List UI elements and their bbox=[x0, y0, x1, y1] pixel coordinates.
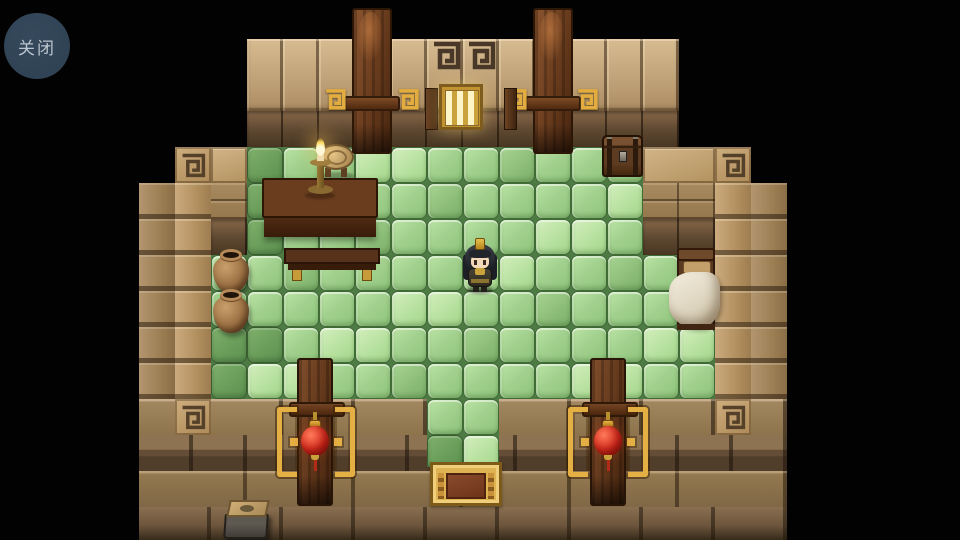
floor-tile bbox=[572, 220, 606, 254]
floor-tile bbox=[464, 364, 498, 398]
right-wall-outer bbox=[751, 183, 787, 399]
floor-tile bbox=[608, 184, 642, 218]
close-button[interactable]: 关闭 bbox=[4, 13, 70, 79]
corner-spiral-tile bbox=[175, 147, 211, 183]
floor-tile bbox=[536, 220, 570, 254]
floor-tile bbox=[500, 328, 534, 362]
gold-hook-ornament bbox=[396, 86, 420, 112]
floor-tile bbox=[608, 292, 642, 326]
right-step-bricks bbox=[643, 183, 715, 219]
floor-tile bbox=[284, 292, 318, 326]
floor-tile bbox=[428, 328, 462, 362]
floor-tile bbox=[680, 364, 714, 398]
bench bbox=[284, 248, 380, 282]
floor-tile bbox=[392, 292, 426, 326]
game-viewport[interactable]: 关闭 bbox=[0, 0, 960, 540]
floor-tile bbox=[572, 328, 606, 362]
floor-tile bbox=[644, 364, 678, 398]
floor-tile bbox=[284, 328, 318, 362]
floor-tile bbox=[248, 256, 282, 290]
floor-tile bbox=[392, 220, 426, 254]
floor-tile bbox=[680, 328, 714, 362]
floor-tile bbox=[608, 256, 642, 290]
floor-tile bbox=[536, 364, 570, 398]
floor-tile bbox=[536, 328, 570, 362]
floor-tile bbox=[500, 256, 534, 290]
floor-tile bbox=[248, 148, 282, 182]
floor-tile bbox=[500, 148, 534, 182]
left-step-block bbox=[211, 147, 247, 183]
floor-tile bbox=[356, 292, 390, 326]
floor-tile bbox=[536, 184, 570, 218]
floor-tile bbox=[428, 256, 462, 290]
floor-tile bbox=[212, 364, 246, 398]
corner-spiral-tile bbox=[715, 147, 751, 183]
floor-tile bbox=[248, 328, 282, 362]
floor-tile bbox=[464, 328, 498, 362]
floor-tile bbox=[392, 328, 426, 362]
floor-tile bbox=[248, 292, 282, 326]
right-wall-inner bbox=[715, 183, 751, 399]
clay-pot bbox=[213, 289, 251, 335]
floor-tile bbox=[248, 364, 282, 398]
floor-tile bbox=[572, 148, 606, 182]
floor-tile bbox=[320, 292, 354, 326]
floor-tile bbox=[536, 292, 570, 326]
player-character[interactable] bbox=[460, 238, 500, 296]
floor-path bbox=[427, 399, 499, 467]
floor-tile bbox=[392, 184, 426, 218]
candlestick bbox=[303, 136, 338, 200]
gold-hook-ornament bbox=[575, 86, 599, 112]
left-step-bricks bbox=[211, 183, 247, 219]
floor-tile bbox=[464, 148, 498, 182]
floor-tile bbox=[500, 292, 534, 326]
floor-tile bbox=[500, 364, 534, 398]
stone-block bbox=[222, 500, 274, 540]
door-top-right[interactable] bbox=[533, 8, 573, 154]
floor-tile bbox=[356, 364, 390, 398]
door-mat[interactable] bbox=[430, 462, 502, 506]
gold-bracket bbox=[335, 407, 355, 477]
floor-tile bbox=[572, 292, 606, 326]
floor-tile bbox=[572, 184, 606, 218]
floor-tile bbox=[500, 220, 534, 254]
bed[interactable] bbox=[675, 248, 717, 330]
floor-tile bbox=[572, 256, 606, 290]
floor-tile bbox=[356, 328, 390, 362]
wall-spiral-ornament bbox=[466, 40, 496, 70]
floor-tile bbox=[428, 364, 462, 398]
wall-spiral-ornament bbox=[431, 40, 461, 70]
floor-tile bbox=[320, 328, 354, 362]
floor-tile bbox=[644, 328, 678, 362]
corner-spiral-tile bbox=[175, 399, 211, 435]
left-wall-outer bbox=[139, 183, 175, 399]
wall-crack bbox=[256, 48, 286, 72]
left-wall-inner bbox=[175, 183, 211, 399]
door-top-left[interactable] bbox=[352, 8, 392, 154]
floor-tile bbox=[608, 328, 642, 362]
floor-tile bbox=[392, 148, 426, 182]
gold-bracket bbox=[568, 407, 588, 477]
gold-window bbox=[425, 84, 517, 130]
floor-tile bbox=[428, 400, 462, 434]
floor-tile bbox=[500, 184, 534, 218]
gold-bracket bbox=[628, 407, 648, 477]
chest[interactable] bbox=[602, 135, 643, 177]
floor-tile bbox=[392, 364, 426, 398]
red-lantern bbox=[300, 412, 330, 472]
right-step-block bbox=[643, 147, 715, 183]
floor-tile bbox=[428, 184, 462, 218]
floor-tile bbox=[464, 292, 498, 326]
floor-tile bbox=[536, 256, 570, 290]
floor-tile bbox=[428, 148, 462, 182]
floor-tile bbox=[392, 256, 426, 290]
floor-tile bbox=[608, 220, 642, 254]
gold-hook-ornament bbox=[323, 86, 347, 112]
red-lantern bbox=[593, 412, 623, 472]
floor-tile bbox=[464, 184, 498, 218]
gold-bracket bbox=[277, 407, 297, 477]
close-button-label: 关闭 bbox=[18, 34, 56, 59]
floor-tile bbox=[428, 292, 462, 326]
room-scene bbox=[0, 0, 960, 540]
floor-tile bbox=[428, 220, 462, 254]
floor-tile bbox=[464, 400, 498, 434]
corner-spiral-tile bbox=[715, 399, 751, 435]
